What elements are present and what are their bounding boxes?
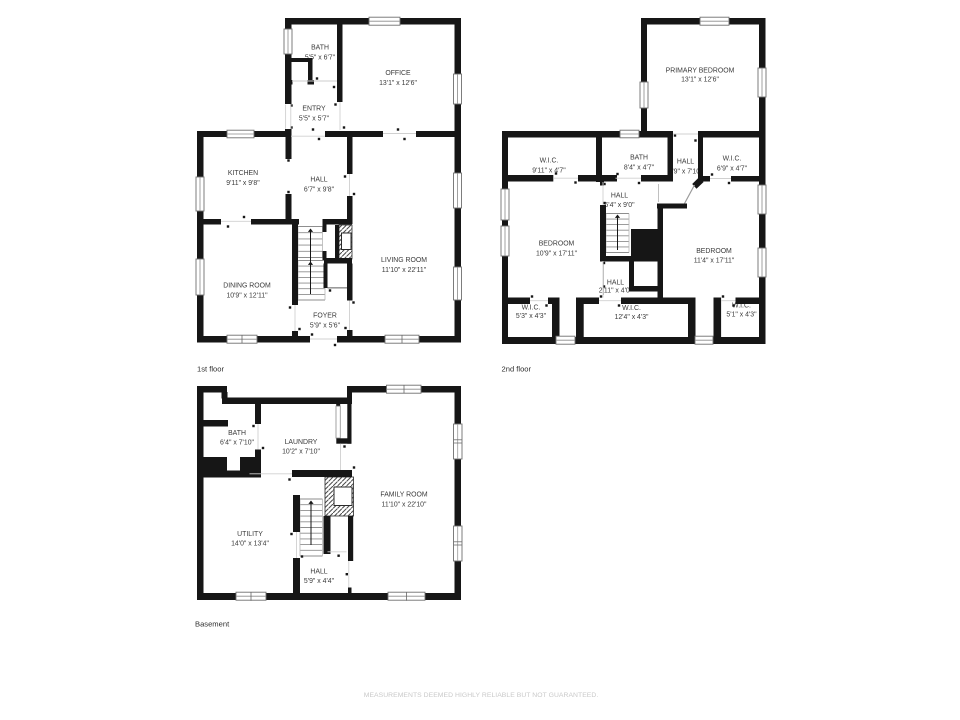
svg-text:Basement: Basement [195,620,230,629]
svg-text:5'9" x 5'6": 5'9" x 5'6" [310,323,341,330]
svg-text:5'3" x 4'3": 5'3" x 4'3" [516,313,547,320]
svg-text:11'4" x 17'11": 11'4" x 17'11" [694,258,735,265]
svg-text:UTILITY: UTILITY [237,531,263,538]
svg-text:10'2" x 7'10": 10'2" x 7'10" [282,449,320,456]
svg-text:9'11" x 9'8": 9'11" x 9'8" [226,180,260,187]
svg-text:13'1" x 12'6": 13'1" x 12'6" [379,80,417,87]
svg-text:5'5" x 5'7": 5'5" x 5'7" [299,116,330,123]
svg-text:W.I.C.: W.I.C. [723,156,742,163]
svg-text:2nd floor: 2nd floor [502,365,532,374]
svg-text:ENTRY: ENTRY [302,106,326,113]
svg-text:10'9" x 17'11": 10'9" x 17'11" [536,251,578,258]
svg-text:HALL: HALL [677,159,694,166]
svg-text:FAMILY ROOM: FAMILY ROOM [380,492,427,499]
svg-text:9'11" x 4'7": 9'11" x 4'7" [532,168,566,175]
svg-text:DINING ROOM: DINING ROOM [223,283,271,290]
svg-text:6'9" x 4'7": 6'9" x 4'7" [717,166,748,173]
svg-text:LAUNDRY: LAUNDRY [285,439,318,446]
svg-text:W.I.C.: W.I.C. [622,305,641,312]
svg-text:HALL: HALL [611,193,628,200]
svg-text:W.I.C.: W.I.C. [522,305,541,312]
svg-text:BEDROOM: BEDROOM [539,241,575,248]
svg-text:PRIMARY BEDROOM: PRIMARY BEDROOM [666,68,735,75]
svg-text:10'9" x 12'11": 10'9" x 12'11" [226,293,268,300]
svg-text:OFFICE: OFFICE [385,70,411,77]
svg-text:BATH: BATH [228,430,246,437]
svg-text:FOYER: FOYER [313,313,337,320]
svg-text:6'4" x 7'10": 6'4" x 7'10" [220,440,255,447]
svg-text:MEASUREMENTS DEEMED HIGHLY REL: MEASUREMENTS DEEMED HIGHLY RELIABLE BUT … [364,692,599,699]
svg-text:BEDROOM: BEDROOM [696,248,732,255]
svg-text:HALL: HALL [310,569,327,576]
svg-text:8'4" x 4'7": 8'4" x 4'7" [624,165,655,172]
svg-text:13'1" x 12'6": 13'1" x 12'6" [681,77,719,84]
svg-text:12'4" x 4'3": 12'4" x 4'3" [615,314,650,321]
svg-text:11'10" x 22'11": 11'10" x 22'11" [382,267,427,274]
svg-text:5'1" x 4'3": 5'1" x 4'3" [726,312,757,319]
svg-text:LIVING ROOM: LIVING ROOM [381,257,427,264]
svg-text:3'9" x 7'10": 3'9" x 7'10" [669,169,704,176]
svg-text:1st floor: 1st floor [197,365,224,374]
svg-text:W.I.C.: W.I.C. [540,158,559,165]
svg-text:14'0" x 13'4": 14'0" x 13'4" [231,541,269,548]
svg-text:BATH: BATH [630,155,648,162]
svg-text:BATH: BATH [311,45,329,52]
svg-text:5'9" x 4'4": 5'9" x 4'4" [304,578,335,585]
svg-text:KITCHEN: KITCHEN [228,170,258,177]
svg-text:HALL: HALL [607,280,624,287]
svg-text:6'4" x 9'0": 6'4" x 9'0" [604,202,635,209]
svg-text:6'7" x 9'8": 6'7" x 9'8" [304,187,335,194]
svg-text:HALL: HALL [310,177,327,184]
svg-text:11'10" x 22'10": 11'10" x 22'10" [382,502,427,509]
